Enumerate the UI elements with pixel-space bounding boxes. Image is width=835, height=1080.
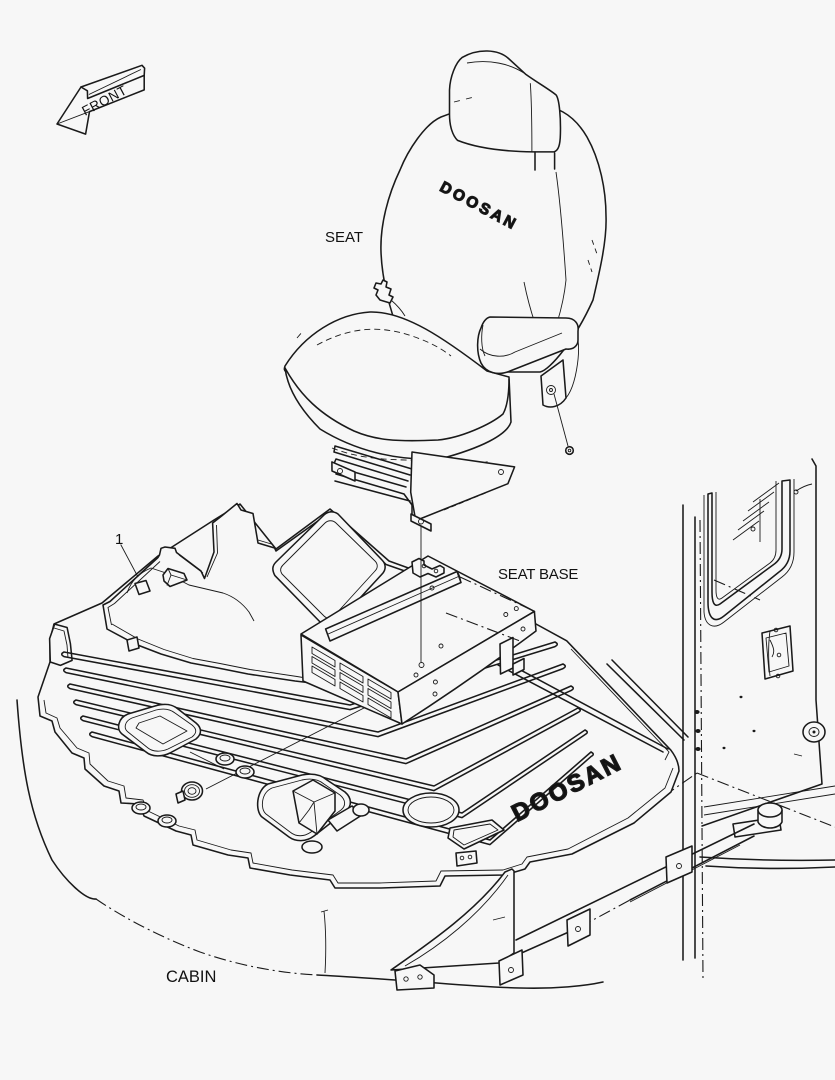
svg-text:SEAT: SEAT [325,229,363,246]
svg-text:CABIN: CABIN [166,968,216,986]
svg-text:1: 1 [115,531,123,548]
svg-text:SEAT BASE: SEAT BASE [498,566,578,583]
